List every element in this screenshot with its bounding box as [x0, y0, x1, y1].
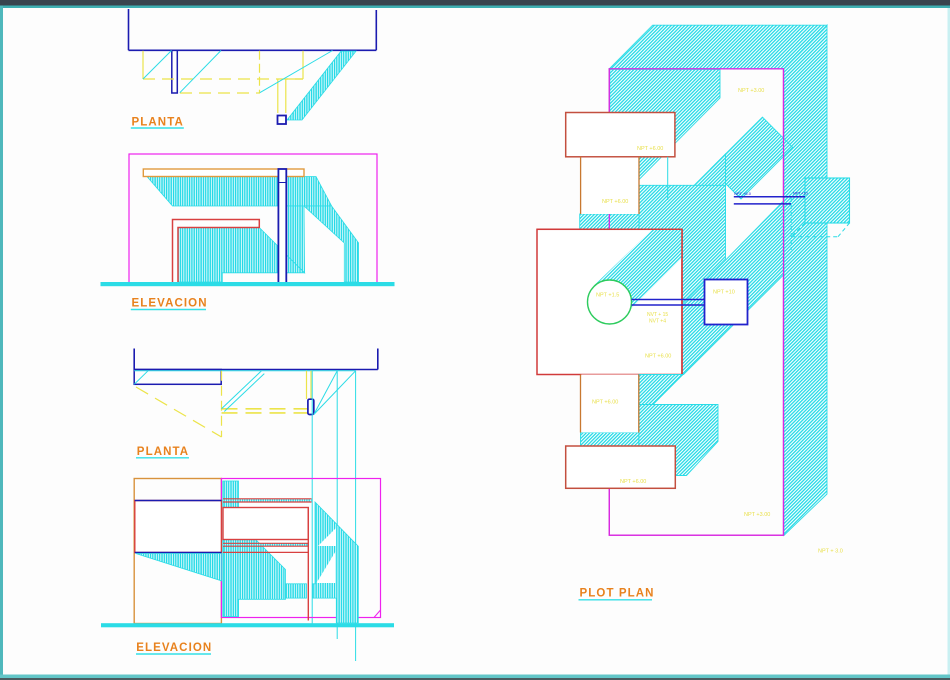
- svg-text:NPT +10: NPT +10: [713, 290, 735, 296]
- svg-text:NPT +6.00: NPT +6.00: [592, 400, 618, 406]
- svg-text:PLOT PLAN: PLOT PLAN: [580, 588, 655, 600]
- svg-text:NPT+10: NPT+10: [793, 191, 809, 196]
- svg-text:NPT +6.00: NPT +6.00: [602, 199, 628, 205]
- svg-text:NPT +3.00: NPT +3.00: [738, 88, 764, 94]
- svg-text:NPT + 3.0: NPT + 3.0: [818, 549, 843, 555]
- svg-text:NVT + 15: NVT + 15: [647, 312, 668, 318]
- svg-text:PLANTA: PLANTA: [137, 446, 189, 458]
- svg-text:NPT +6.00: NPT +6.00: [620, 479, 646, 485]
- svg-text:ELEVACION: ELEVACION: [132, 298, 208, 310]
- svg-text:NPT +1.5: NPT +1.5: [596, 293, 619, 299]
- svg-text:PLANTA: PLANTA: [132, 117, 184, 129]
- svg-text:NPT +3.00: NPT +3.00: [744, 512, 770, 518]
- svg-text:NPT +6.0: NPT +6.0: [734, 191, 752, 196]
- svg-text:ELEVACION: ELEVACION: [136, 642, 212, 654]
- svg-text:NPT +6.00: NPT +6.00: [645, 354, 671, 360]
- svg-text:NPT +6.00: NPT +6.00: [637, 146, 663, 152]
- svg-text:NVT +4: NVT +4: [649, 319, 666, 325]
